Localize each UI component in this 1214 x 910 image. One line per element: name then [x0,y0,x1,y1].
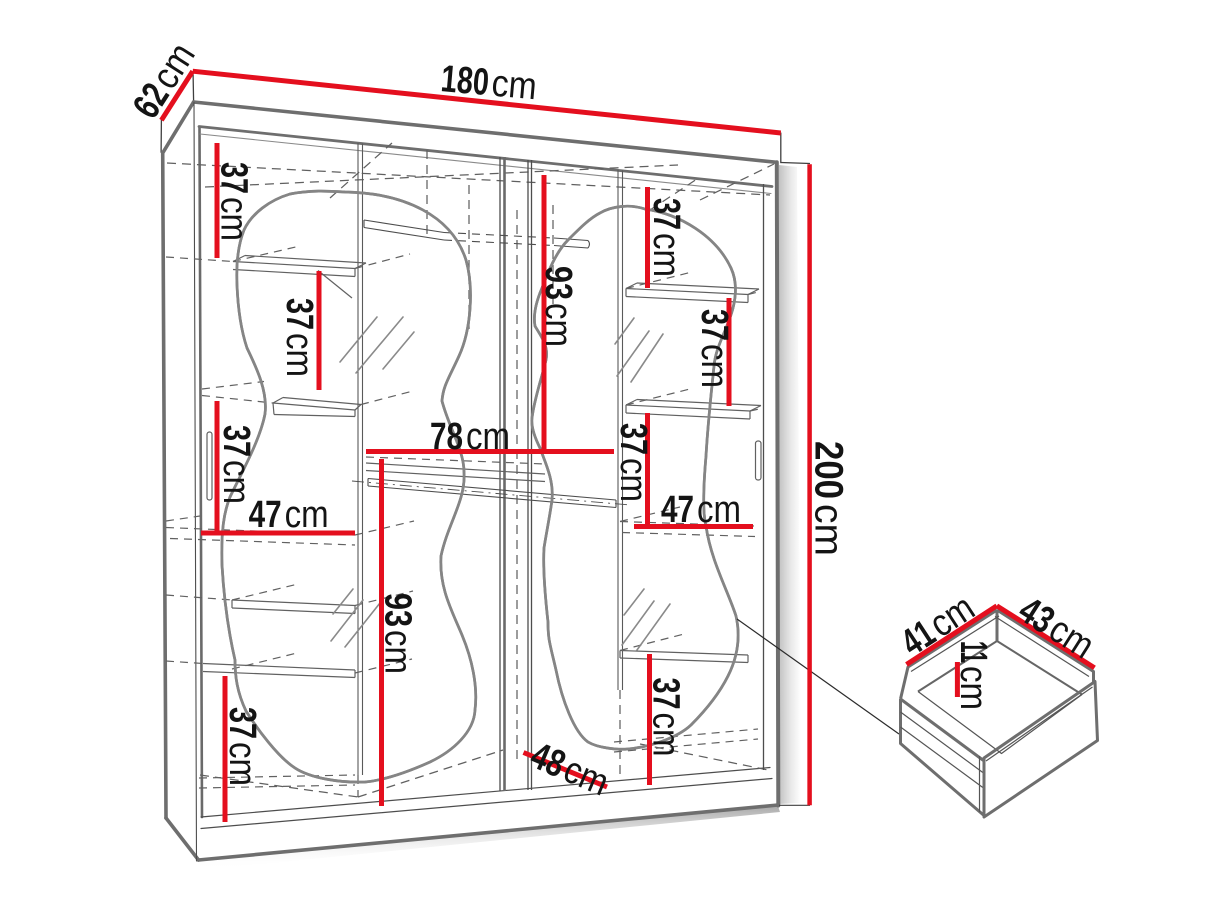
svg-text:37cm: 37cm [645,198,687,277]
svg-text:37cm: 37cm [278,298,320,377]
svg-text:11cm: 11cm [952,641,994,710]
svg-text:37cm: 37cm [221,707,263,786]
svg-text:37cm: 37cm [213,162,255,241]
svg-text:37cm: 37cm [645,678,687,757]
svg-text:200cm: 200cm [807,441,851,556]
svg-text:37cm: 37cm [693,309,735,388]
svg-text:93cm: 93cm [377,593,419,674]
svg-text:37cm: 37cm [612,423,654,502]
svg-text:47cm: 47cm [661,489,741,531]
svg-text:37cm: 37cm [215,425,257,504]
svg-text:47cm: 47cm [249,494,329,536]
svg-text:93cm: 93cm [537,266,579,347]
svg-text:78cm: 78cm [430,416,510,458]
